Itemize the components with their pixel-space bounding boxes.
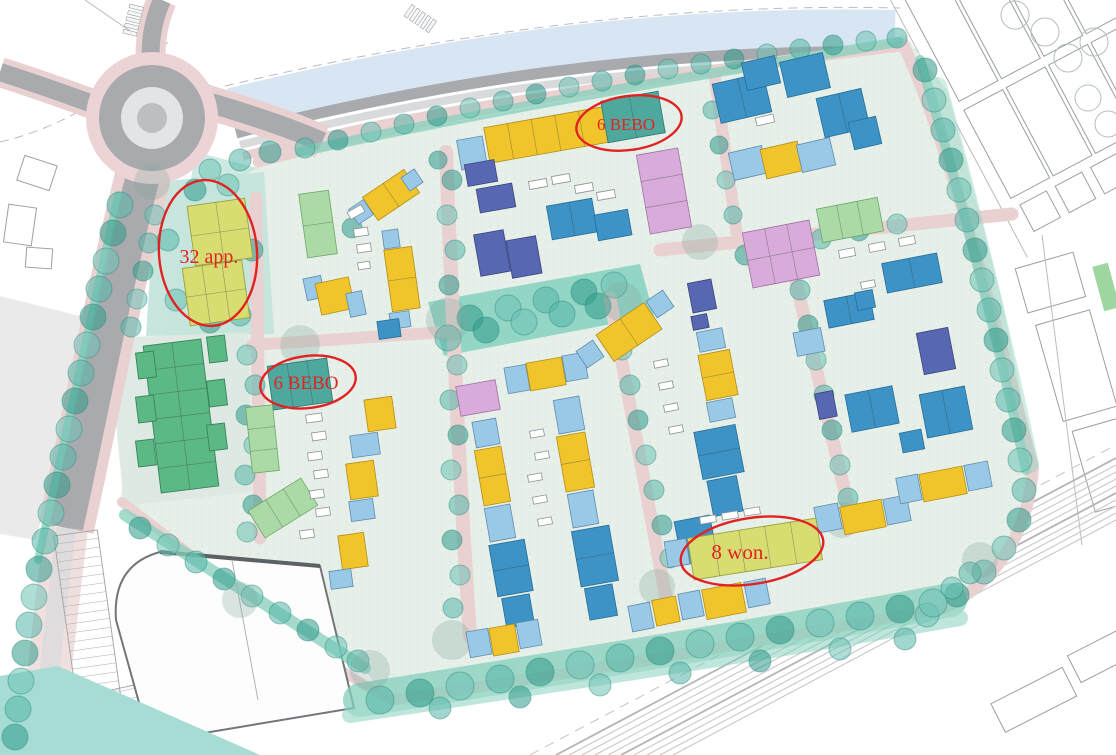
building-shed — [300, 529, 315, 539]
tree — [133, 261, 153, 281]
tree — [766, 616, 794, 644]
building-yellow — [364, 396, 396, 432]
tree — [297, 619, 319, 641]
tree — [984, 328, 1008, 352]
annotation-label: 6 BEBO — [597, 115, 655, 134]
tree-canopy — [426, 298, 470, 342]
tree — [606, 644, 634, 672]
tree — [658, 59, 678, 79]
tree — [441, 460, 461, 480]
building-light-blue — [349, 498, 376, 521]
tree — [1007, 508, 1031, 532]
tree — [652, 515, 672, 535]
tree — [790, 280, 810, 300]
building-indigo — [464, 160, 497, 187]
site-plan-map: 6 BEBO 32 app. 6 BEBO 8 won. — [0, 0, 1116, 755]
building-yellow-green — [182, 260, 249, 326]
tree-canopy — [134, 164, 170, 200]
tree — [442, 170, 462, 190]
tree — [217, 174, 239, 196]
building-light-blue — [964, 461, 993, 491]
tree — [229, 149, 251, 171]
tree — [237, 345, 257, 365]
tree — [970, 268, 994, 292]
tree — [823, 35, 843, 55]
tree — [686, 630, 714, 658]
tree — [894, 628, 916, 650]
tree — [185, 551, 207, 573]
tree — [830, 455, 850, 475]
building-blue — [377, 319, 401, 340]
tree — [724, 49, 744, 69]
tree — [493, 91, 513, 111]
building-light-blue — [793, 328, 825, 357]
context-existing-blocks-bottomright — [987, 624, 1116, 732]
tree-canopy — [280, 325, 320, 365]
tree — [429, 151, 447, 169]
tree — [526, 658, 554, 686]
building-yellow — [652, 596, 681, 626]
building-green — [206, 379, 227, 407]
tree — [846, 602, 874, 630]
tree — [447, 355, 467, 375]
tree-canopy — [350, 650, 390, 690]
tree — [887, 28, 907, 48]
tree — [269, 602, 291, 624]
tree — [21, 584, 47, 610]
tree — [726, 623, 754, 651]
tree — [361, 122, 381, 142]
tree — [887, 214, 907, 234]
tree — [996, 388, 1020, 412]
tree — [50, 444, 76, 470]
building-blue — [594, 209, 632, 241]
building-shed — [306, 413, 323, 423]
tree — [669, 662, 691, 684]
tree — [121, 317, 141, 337]
tree — [511, 309, 537, 335]
building-green — [206, 423, 227, 451]
tree-canopy — [222, 582, 258, 618]
tree — [68, 360, 94, 386]
building-light-blue — [628, 602, 655, 632]
building-light-blue — [553, 396, 585, 434]
tree — [328, 130, 348, 150]
tree — [628, 410, 648, 430]
building-shed — [308, 451, 323, 461]
tree — [947, 178, 971, 202]
tree — [1008, 448, 1032, 472]
tree — [644, 480, 664, 500]
tree — [442, 530, 462, 550]
tree — [460, 98, 480, 118]
tree — [56, 416, 82, 442]
tree — [566, 651, 594, 679]
tree — [439, 275, 459, 295]
annotation-label: 6 BEBO — [274, 373, 339, 394]
tree — [625, 65, 645, 85]
building-mauve — [456, 380, 501, 416]
tree — [429, 697, 451, 719]
tree — [86, 276, 112, 302]
building-indigo — [691, 314, 709, 331]
tree — [724, 206, 742, 224]
tree — [509, 686, 531, 708]
tree — [559, 77, 579, 97]
tree — [829, 638, 851, 660]
tree — [1012, 478, 1036, 502]
tree — [139, 233, 159, 253]
building-blue — [899, 429, 924, 453]
building-shed — [354, 227, 369, 237]
tree — [636, 445, 656, 465]
annotation-label: 32 app. — [180, 246, 239, 268]
tree — [445, 240, 465, 260]
tree — [107, 192, 133, 218]
building-shed — [358, 261, 371, 270]
building-green — [135, 439, 156, 467]
tree — [8, 668, 34, 694]
building-light-blue — [472, 418, 500, 448]
building-light-blue — [896, 474, 923, 504]
tree — [5, 696, 31, 722]
tree — [822, 420, 842, 440]
building-light-blue — [466, 628, 492, 657]
building-light-blue — [664, 538, 690, 567]
tree — [931, 118, 955, 142]
tree — [44, 472, 70, 498]
tree — [717, 171, 735, 189]
tree — [446, 672, 474, 700]
tree — [437, 205, 457, 225]
tree — [2, 724, 28, 750]
building-shed — [310, 489, 325, 499]
building-blue — [584, 584, 617, 620]
tree — [38, 500, 64, 526]
tree — [449, 495, 469, 515]
building-yellow — [526, 357, 566, 391]
tree — [913, 58, 937, 82]
tree — [955, 208, 979, 232]
tree — [448, 425, 468, 445]
building-blue — [707, 475, 743, 516]
tree — [74, 332, 100, 358]
tree — [922, 88, 946, 112]
tree-canopy — [962, 542, 998, 578]
tree — [749, 650, 771, 672]
tree — [886, 595, 914, 623]
context-green-strip — [1092, 263, 1116, 312]
annotation-label: 8 won. — [711, 540, 768, 564]
tree — [526, 84, 546, 104]
building-indigo — [687, 279, 716, 313]
building-light-blue — [484, 504, 516, 542]
tree — [443, 598, 463, 618]
building-green — [135, 351, 156, 379]
tree — [62, 388, 88, 414]
tree — [427, 106, 447, 126]
tree — [366, 686, 394, 714]
tree — [473, 317, 499, 343]
building-green — [206, 335, 227, 363]
tree — [963, 238, 987, 262]
tree — [325, 636, 347, 658]
tree — [295, 138, 315, 158]
building-light-blue — [350, 432, 381, 458]
tree — [157, 534, 179, 556]
building-shed — [316, 507, 331, 517]
tree — [80, 304, 106, 330]
building-shed — [357, 243, 372, 253]
tree — [1002, 418, 1026, 442]
tree — [977, 298, 1001, 322]
tree — [16, 612, 42, 638]
building-blue — [854, 289, 875, 310]
building-light-blue — [516, 619, 542, 648]
building-yellow — [338, 532, 368, 569]
tree — [486, 665, 514, 693]
building-light-blue — [504, 364, 530, 393]
building-yellow — [346, 460, 379, 500]
tree — [941, 577, 963, 599]
tree — [856, 31, 876, 51]
tree — [710, 136, 728, 154]
building-light-blue — [329, 569, 353, 590]
tree — [127, 289, 147, 309]
tree — [394, 114, 414, 134]
tree — [589, 674, 611, 696]
building-light-blue — [382, 229, 400, 249]
tree — [620, 375, 640, 395]
tree — [450, 565, 470, 585]
tree — [12, 640, 38, 666]
tree — [990, 358, 1014, 382]
building-blue — [919, 386, 973, 438]
tree — [646, 637, 674, 665]
building-yellow — [489, 624, 519, 656]
tree — [549, 301, 575, 327]
building-indigo — [506, 236, 542, 279]
building-shed — [314, 469, 329, 479]
tree-canopy — [432, 620, 472, 660]
building-blue — [694, 424, 744, 479]
tree — [100, 220, 126, 246]
tree — [939, 148, 963, 172]
tree — [237, 522, 257, 542]
tree — [199, 159, 221, 181]
tree — [592, 71, 612, 91]
tree — [691, 54, 711, 74]
tree — [129, 517, 151, 539]
tree — [32, 528, 58, 554]
tree-canopy — [682, 224, 718, 260]
tree — [93, 248, 119, 274]
tree — [26, 556, 52, 582]
building-light-blue — [678, 590, 705, 620]
tree — [806, 609, 834, 637]
tree — [259, 141, 281, 163]
building-blue — [848, 116, 882, 150]
building-shed — [312, 431, 327, 441]
building-light-blue — [567, 490, 599, 528]
building-green — [135, 395, 156, 423]
